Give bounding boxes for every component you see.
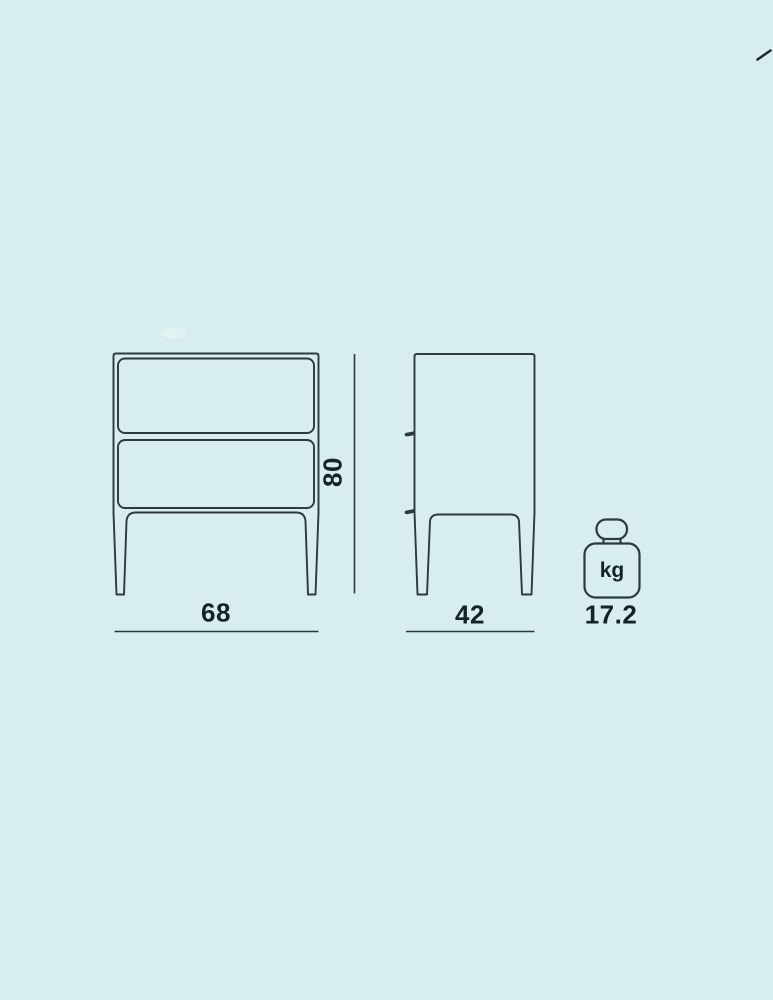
dimension-lines <box>115 354 535 632</box>
weight-knob <box>597 520 628 540</box>
technical-drawing <box>0 0 773 1000</box>
front-drawer-bottom <box>118 440 314 508</box>
depth-dimension-label: 42 <box>455 600 485 631</box>
height-dimension-label: 80 <box>318 457 349 487</box>
paper-smudge <box>160 328 186 339</box>
width-dimension-label: 68 <box>201 598 231 629</box>
front-drawer-top <box>118 359 314 434</box>
front-view-drawing <box>114 354 319 595</box>
side-view-drawing <box>405 354 535 595</box>
drawer-lip-bottom-icon <box>405 509 415 514</box>
front-view-outline <box>114 354 319 595</box>
weight-value-label: 17.2 <box>585 600 638 631</box>
kg-unit-label: kg <box>600 559 625 583</box>
stray-pen-mark <box>758 51 771 60</box>
side-view-outline <box>415 354 535 595</box>
spec-sheet: 68 80 42 kg 17.2 <box>0 0 773 1000</box>
drawer-lip-top-icon <box>405 431 415 436</box>
